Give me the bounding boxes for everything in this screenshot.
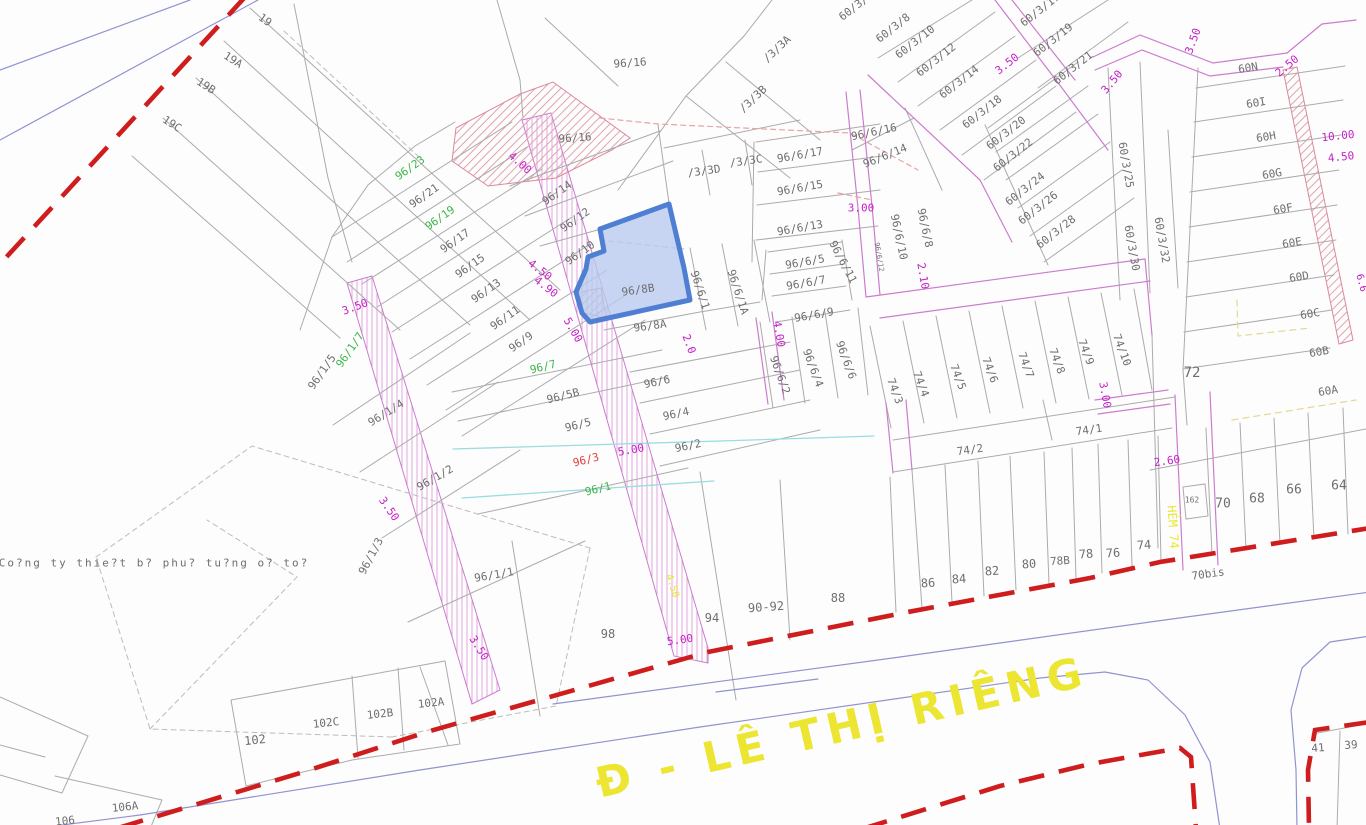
- selected-parcel[interactable]: [576, 204, 690, 322]
- planning-red-boundary: [862, 748, 1196, 825]
- planning-red-boundary: [0, 0, 246, 264]
- parcel-label: 78: [1078, 547, 1093, 562]
- utility-line: [453, 436, 874, 449]
- parcel-boundary-line: [1194, 100, 1343, 122]
- parcel-label: 96/6/14: [861, 141, 909, 171]
- parcel-label: 60E: [1281, 235, 1303, 251]
- parcel-boundary-line: [700, 472, 736, 700]
- parcel-label: 76: [1105, 546, 1120, 561]
- parcel-label: 96/6/2: [767, 354, 793, 396]
- road-edge-line: [716, 679, 818, 692]
- parcel-boundary-line: [1187, 240, 1336, 262]
- parcel-label: 96/6/12: [872, 242, 885, 272]
- parcel-label: 64: [1331, 479, 1347, 494]
- planning-red-boundary: [1308, 722, 1366, 825]
- parcel-label: 102A: [417, 695, 445, 711]
- parcel-label: 60A: [1317, 383, 1339, 399]
- parcel-label: 60/3/18: [960, 93, 1005, 132]
- alley-boundary-line: [1093, 20, 1356, 63]
- dashed-boundary-line: [284, 31, 420, 158]
- parcel-label: 96/6/8: [915, 207, 936, 249]
- parcel-label: 74/6: [979, 355, 1000, 384]
- dashed-boundary-line: [96, 557, 392, 737]
- parcel-label: /3/3A: [760, 33, 793, 65]
- parcel-label: 60/3/28: [1034, 213, 1079, 252]
- hatched-strip: [452, 82, 630, 186]
- street-name-label: Đ - LÊ THỊ RIÊNG: [591, 645, 1094, 807]
- parcel-label: Co?ng ty thie?t b? phu? tu?ng o? to?: [0, 557, 309, 570]
- parcel-label: 60C: [1299, 306, 1321, 322]
- dimension-label: 4.50: [1327, 149, 1355, 165]
- parcel-label: 60D: [1288, 269, 1310, 285]
- parcel-boundary-line: [664, 120, 800, 148]
- parcel-label: /3/3C: [729, 152, 764, 169]
- parcel-label: 60H: [1255, 129, 1277, 145]
- parcel-label: 60B: [1308, 344, 1330, 360]
- parcel-boundary-line: [870, 326, 891, 428]
- parcel-label: 96/6/9: [793, 305, 834, 325]
- dimension-label: 3.00: [848, 202, 875, 215]
- parcel-boundary-line: [1043, 400, 1052, 440]
- parcel-label: 84: [951, 572, 966, 587]
- road-edge-line: [0, 0, 258, 140]
- parcel-label: 70bis: [1191, 565, 1226, 582]
- parcel-label: 96/5B: [545, 386, 581, 407]
- parcel-boundary-line: [1128, 440, 1132, 566]
- parcel-label: 60/3/21: [1051, 49, 1096, 88]
- parcel-boundary-line: [0, 745, 45, 757]
- parcel-boundary-line: [1308, 413, 1314, 539]
- parcel-label: 96/6/17: [776, 145, 824, 166]
- parcel-boundary-line: [792, 317, 805, 403]
- parcel-label: 72: [1184, 365, 1201, 381]
- parcel-label: 94: [705, 611, 719, 625]
- parcel-boundary-line: [1044, 452, 1049, 584]
- parcel-boundary-line: [1337, 731, 1340, 825]
- parcel-boundary-line: [978, 461, 984, 596]
- parcel-label: 88: [831, 591, 845, 605]
- parcel-label: 96/23: [393, 153, 428, 183]
- parcel-boundary-line: [1072, 448, 1076, 578]
- parcel-label: 60/3/14: [937, 62, 982, 101]
- parcel-label: 96/1/5: [305, 352, 338, 392]
- parcel-label: 82: [984, 564, 999, 579]
- parcel-label: 60/3/6: [836, 0, 875, 23]
- dimension-label: 4.00: [770, 320, 787, 348]
- parcel-boundary-line: [1150, 429, 1366, 470]
- parcel-label: 74/2: [956, 442, 984, 459]
- parcel-label: 96/6/15: [776, 178, 824, 199]
- parcel-boundary-line: [905, 108, 942, 190]
- alley-boundary-line: [906, 400, 912, 470]
- parcel-label: 60/3/19: [1031, 21, 1076, 60]
- parcel-label: 102B: [366, 706, 394, 722]
- parcel-label: 74/9: [1075, 337, 1096, 366]
- parcel-label: 66: [1286, 483, 1302, 498]
- parcel-label: 96/6/4: [800, 347, 826, 389]
- parcel-label: 70: [1215, 497, 1231, 512]
- parcel-label: 80: [1021, 557, 1036, 572]
- parcel-boundary-line: [893, 428, 1172, 472]
- parcel-label: 106A: [111, 799, 139, 815]
- parcel-label: 96/6/6: [833, 339, 859, 381]
- parcel-boundary-line: [893, 397, 1175, 440]
- road-edge-line: [0, 0, 190, 70]
- dimension-label: 2.60: [1153, 453, 1181, 470]
- parcel-label: 96/16: [558, 130, 592, 145]
- parcel-boundary-line: [1274, 418, 1280, 544]
- parcel-label: 96/2: [674, 437, 703, 455]
- parcel-boundary-line: [294, 4, 352, 262]
- parcel-label: 96/6/16: [850, 121, 898, 143]
- parcel-boundary-line: [1240, 423, 1246, 549]
- dimension-label: 6.6: [1353, 273, 1366, 293]
- parcel-boundary-line: [196, 78, 470, 325]
- dashed-boundary-line: [96, 446, 590, 557]
- parcel-boundary-line: [231, 661, 460, 786]
- parcel-boundary-line: [1168, 130, 1178, 288]
- dimension-label: 2.0: [679, 332, 698, 355]
- parcel-label: 60/3/30: [1122, 224, 1143, 272]
- hatched-strip: [1283, 67, 1353, 344]
- parcel-label: 74/10: [1110, 332, 1134, 368]
- setback-dashed-line: [1237, 300, 1310, 336]
- parcel-boundary-line: [362, 169, 542, 284]
- parcel-boundary-line: [512, 541, 540, 716]
- parcel-label: /3/3B: [736, 83, 769, 115]
- parcel-boundary-line: [1010, 456, 1016, 590]
- map-viewport: 1919A19B19C96/2396/2196/1996/1796/1596/1…: [0, 0, 1366, 825]
- parcel-label: 60G: [1261, 166, 1283, 182]
- parcel-label: 74: [1136, 538, 1151, 553]
- parcel-label: 60/3/32: [1152, 216, 1173, 264]
- parcel-boundary-line: [630, 342, 790, 372]
- parcel-label: 96/7: [529, 357, 558, 376]
- parcel-label: 96/6/1: [688, 269, 713, 311]
- parcel-label: 74/4: [910, 369, 931, 399]
- parcel-label: 102C: [312, 715, 340, 731]
- parcel-label: 96/1/3: [356, 535, 386, 576]
- parcel-label: 96/6/10: [888, 213, 910, 261]
- parcel-boundary-line: [1343, 408, 1348, 534]
- parcel-label: 60I: [1245, 95, 1267, 111]
- parcel-label: 68: [1249, 492, 1265, 507]
- dimension-label: 4.90: [532, 274, 561, 301]
- parcel-label: 60N: [1237, 60, 1259, 76]
- parcel-label: 96/6/1A: [725, 268, 752, 316]
- parcel-label: 96/3: [572, 450, 601, 469]
- dimension-label: 3.50: [1099, 68, 1126, 97]
- alley-boundary-line: [886, 403, 893, 473]
- parcel-label: 90-92: [747, 599, 784, 615]
- parcel-label: 74/7: [1015, 350, 1036, 379]
- parcel-boundary-line: [1186, 275, 1334, 297]
- parcel-label: 96/9: [506, 329, 535, 355]
- parcel-boundary-line: [1206, 428, 1212, 554]
- labels-layer: 1919A19B19C96/2396/2196/1996/1796/1596/1…: [0, 0, 1366, 825]
- parcel-label: 78B: [1050, 554, 1071, 568]
- parcel-label: 19: [256, 11, 274, 29]
- parcel-label: 102: [243, 732, 266, 748]
- parcel-label: 106: [54, 813, 75, 825]
- dimension-label: 3.50: [376, 494, 402, 523]
- parcel-boundary-line: [545, 18, 618, 86]
- parcel-label: 39: [1344, 738, 1358, 752]
- parcel-boundary-line: [890, 477, 896, 612]
- parcel-boundary-line: [1098, 444, 1102, 573]
- planning-dashed-line: [838, 193, 872, 200]
- setback-dashed-line: [1232, 400, 1356, 420]
- parcel-label: 96/8A: [633, 317, 668, 335]
- parcel-label: 162: [1185, 496, 1200, 505]
- alley-boundary-line: [1145, 259, 1152, 335]
- planning-red-boundary: [118, 528, 1366, 825]
- parcel-boundary-line: [0, 697, 88, 793]
- parcel-label: /3/3D: [687, 162, 722, 179]
- parcel-label: 60F: [1272, 201, 1294, 217]
- dimension-label: 2.10: [914, 262, 931, 290]
- parcel-label: 96/16: [613, 55, 647, 70]
- parcel-boundary-line: [825, 312, 838, 398]
- parcel-label: 86: [920, 576, 935, 591]
- selected-parcel-layer: [576, 204, 690, 322]
- parcel-label: 96/11: [488, 303, 523, 333]
- parcel-label: 96/6: [643, 373, 672, 391]
- parcel-boundary-line: [858, 308, 868, 395]
- parcel-boundary-line: [1140, 62, 1150, 293]
- parcel-label: 19C: [160, 113, 184, 135]
- cadastral-map: 1919A19B19C96/2396/2196/1996/1796/1596/1…: [0, 0, 1366, 825]
- parcel-label: 98: [601, 627, 615, 641]
- dimension-label: 3.00: [1096, 381, 1113, 409]
- parcel-boundary-line: [1108, 68, 1120, 300]
- parcel-boundary-line: [658, 125, 669, 203]
- alley-boundary-line: [866, 259, 1145, 297]
- parcel-label: 60/3/25: [1116, 141, 1137, 189]
- parcel-label: 74/3: [884, 376, 905, 405]
- dimension-label: 3.50: [1182, 26, 1203, 55]
- parcel-boundary-line: [410, 244, 590, 359]
- parcel-label: 19A: [221, 49, 245, 71]
- hatched-areas-layer: [347, 67, 1353, 704]
- parcel-boundary-line: [1196, 66, 1345, 88]
- parcel-boundary-line: [377, 192, 557, 307]
- parcel-label: 96/1/1: [473, 565, 514, 585]
- parcel-label: 60/3/12: [914, 41, 959, 80]
- parcel-label: 74/1: [1075, 422, 1103, 439]
- parcel-label: 19B: [194, 75, 218, 97]
- parcel-label: 96/5: [564, 415, 593, 434]
- parcel-label: 60/3/17: [1018, 0, 1063, 29]
- parcel-label: 96/1: [584, 479, 613, 498]
- parcel-boundary-line: [352, 676, 358, 758]
- parcel-label: 96/19: [423, 203, 458, 233]
- parcel-boundary-line: [780, 480, 790, 640]
- parcel-label: 96/4: [662, 405, 691, 423]
- dashed-boundary-line: [150, 520, 297, 729]
- parcel-label: 41: [1311, 741, 1325, 755]
- dimension-label: 10.00: [1321, 128, 1355, 144]
- parcel-boundary-line: [1152, 335, 1158, 548]
